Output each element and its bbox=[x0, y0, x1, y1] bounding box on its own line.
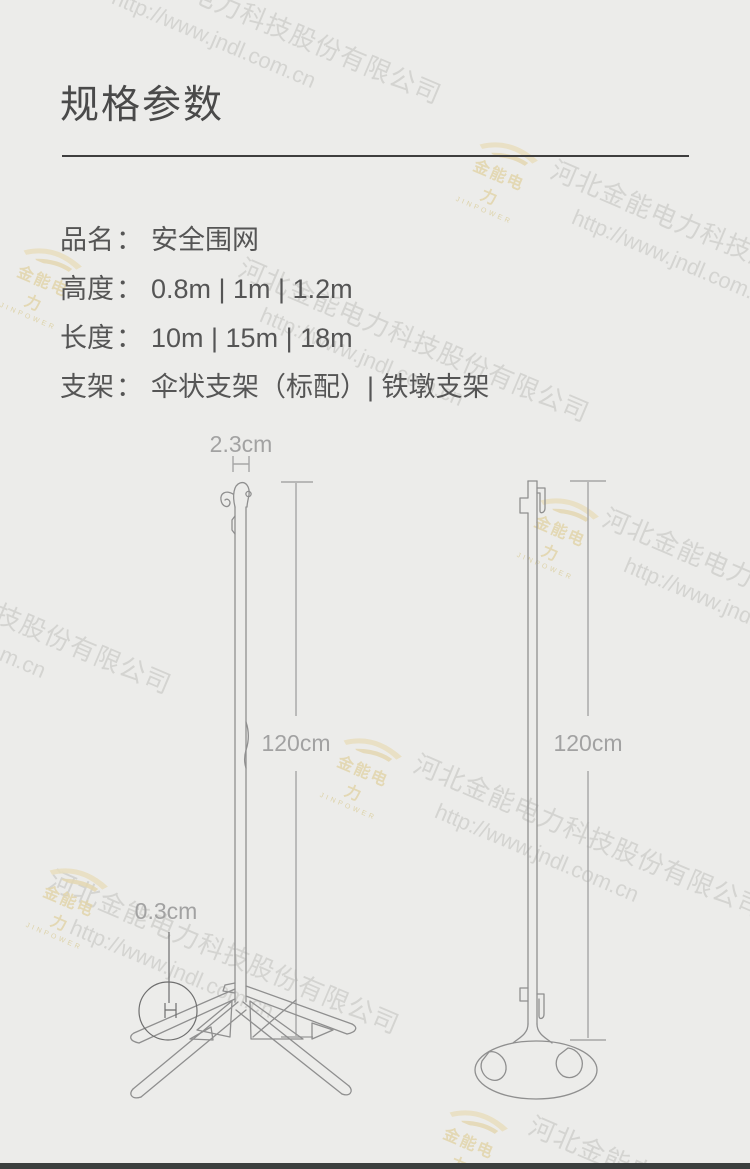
spec-content: 规格参数 品名：安全围网 高度：0.8m | 1m | 1.2m 长度：10m … bbox=[0, 0, 750, 1169]
iron-base-stand-drawing bbox=[475, 481, 597, 1099]
magnifier-detail bbox=[139, 932, 197, 1040]
magnifier-circle bbox=[139, 982, 197, 1040]
spec-page: 河北金能电力科技股份有限公司 http://www.jndl.com.cn 河北… bbox=[0, 0, 750, 1169]
footer-bar bbox=[0, 1163, 750, 1169]
dimension-lines bbox=[233, 456, 606, 1040]
stand-diagrams bbox=[0, 0, 750, 1169]
